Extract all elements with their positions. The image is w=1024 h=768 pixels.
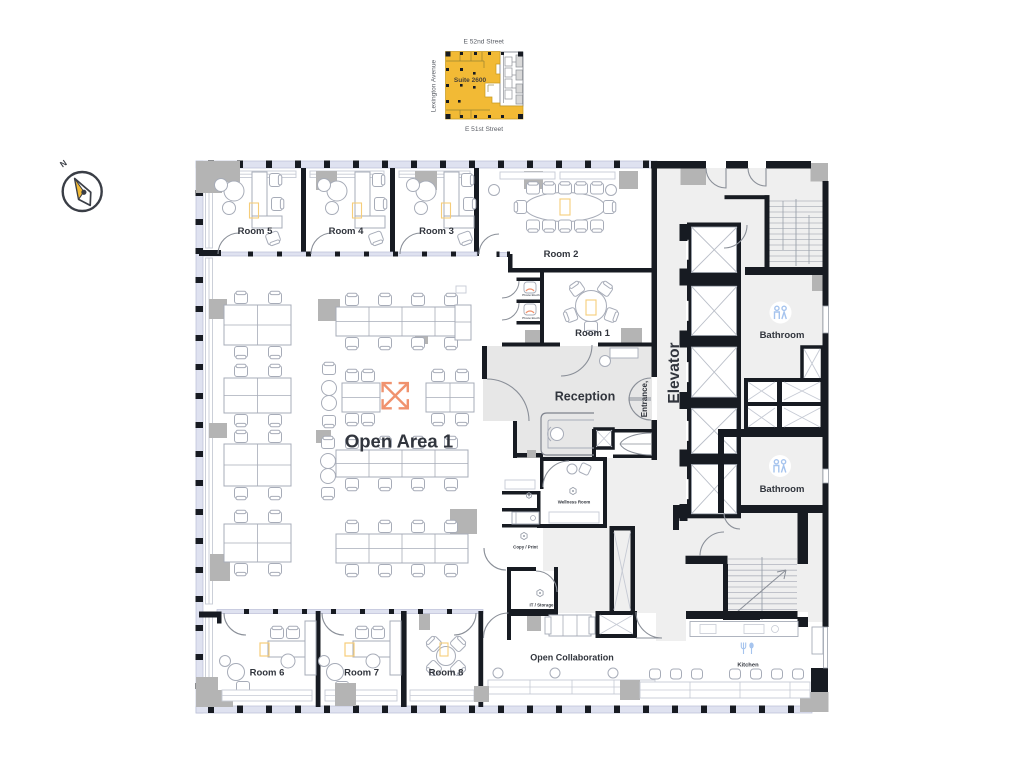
svg-text:Lexington Avenue: Lexington Avenue (431, 60, 438, 113)
svg-text:Copy / Print: Copy / Print (513, 545, 538, 550)
svg-text:Reception: Reception (555, 390, 615, 404)
svg-text:Room 5: Room 5 (238, 226, 274, 237)
svg-text:Bathroom: Bathroom (760, 330, 805, 341)
svg-text:Room 1: Room 1 (575, 328, 611, 339)
svg-text:Elevator: Elevator (666, 342, 683, 403)
svg-text:E 51st Street: E 51st Street (465, 126, 503, 133)
svg-text:Room 8: Room 8 (429, 668, 464, 679)
svg-text:Bathroom: Bathroom (760, 484, 805, 495)
svg-text:Room 6: Room 6 (250, 668, 285, 679)
svg-text:Room 7: Room 7 (344, 668, 379, 679)
svg-text:Open Area 1: Open Area 1 (345, 431, 453, 452)
svg-text:E 52nd Street: E 52nd Street (464, 39, 504, 46)
svg-text:Phone Booth: Phone Booth (522, 316, 540, 320)
svg-text:IT / Storage: IT / Storage (530, 603, 554, 608)
svg-text:Kitchen: Kitchen (737, 663, 759, 669)
svg-text:Phone Booth: Phone Booth (522, 293, 540, 297)
svg-text:Room 4: Room 4 (329, 226, 365, 237)
svg-text:Room 3: Room 3 (419, 226, 454, 237)
svg-text:Open Collaboration: Open Collaboration (530, 653, 614, 663)
svg-text:Room 2: Room 2 (544, 249, 579, 260)
svg-text:Suite 2600: Suite 2600 (454, 77, 487, 84)
svg-text:Wellness Room: Wellness Room (558, 500, 591, 505)
svg-text:Entrance,: Entrance, (640, 381, 649, 417)
